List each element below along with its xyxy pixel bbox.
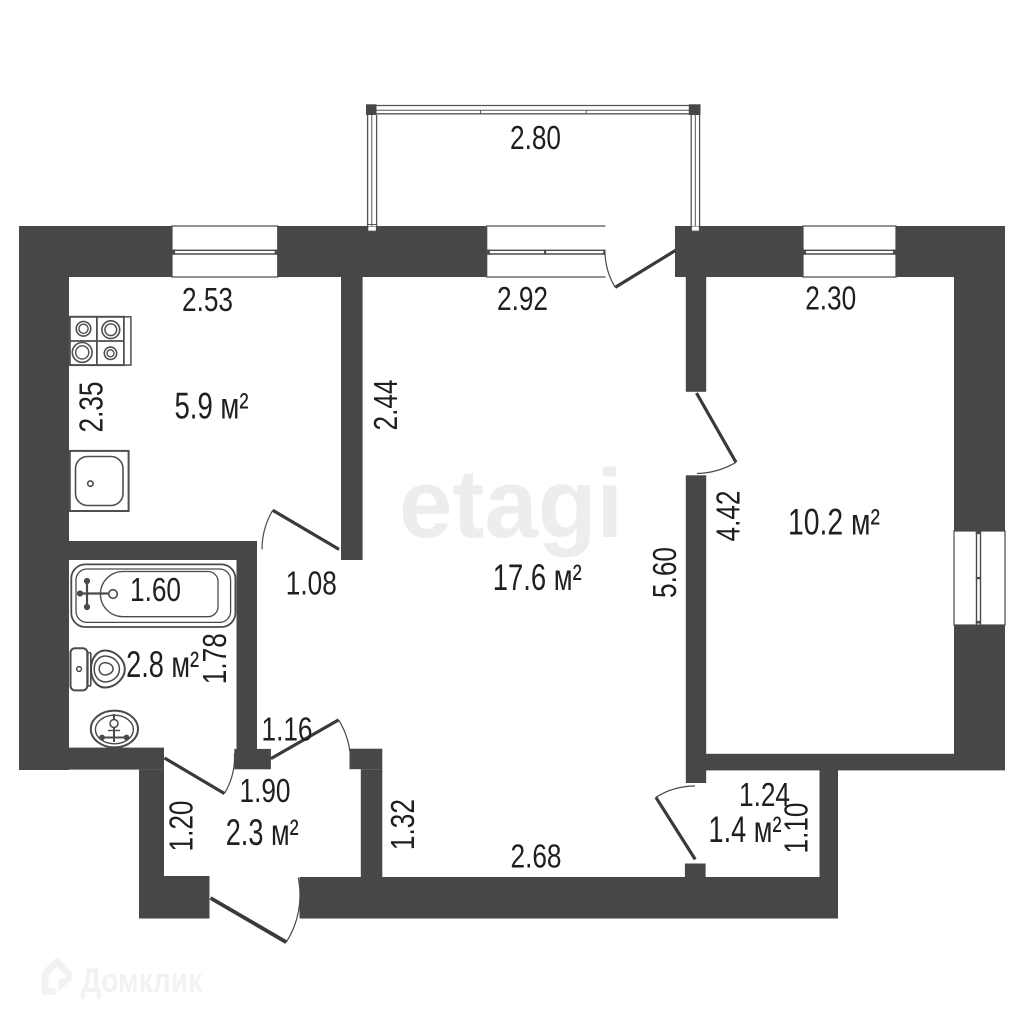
svg-text:1.78: 1.78 [196,633,233,684]
svg-text:5.9 м²: 5.9 м² [175,386,249,427]
svg-text:2.35: 2.35 [73,382,110,433]
svg-text:2.44: 2.44 [367,380,404,431]
svg-text:4.42: 4.42 [710,491,747,542]
svg-text:10.2 м²: 10.2 м² [788,502,880,543]
svg-text:2.80: 2.80 [510,119,561,156]
svg-text:1.10: 1.10 [778,803,815,854]
svg-text:17.6 м²: 17.6 м² [493,557,582,598]
svg-text:etagi: etagi [399,449,623,558]
svg-text:1.20: 1.20 [163,801,200,852]
svg-text:2.8 м²: 2.8 м² [126,644,199,685]
svg-text:2.92: 2.92 [497,280,548,317]
svg-text:1.16: 1.16 [262,710,313,747]
svg-text:2.68: 2.68 [511,838,562,875]
svg-text:1.90: 1.90 [240,772,291,809]
svg-text:1.4 м²: 1.4 м² [709,809,782,850]
svg-text:2.53: 2.53 [182,281,233,318]
svg-text:1.32: 1.32 [384,799,421,850]
svg-text:1.08: 1.08 [286,564,337,601]
svg-text:Домклик: Домклик [81,962,203,1000]
svg-text:2.3 м²: 2.3 м² [226,812,299,853]
svg-text:2.30: 2.30 [805,280,856,317]
svg-text:1.60: 1.60 [130,571,181,608]
svg-text:5.60: 5.60 [646,547,683,598]
